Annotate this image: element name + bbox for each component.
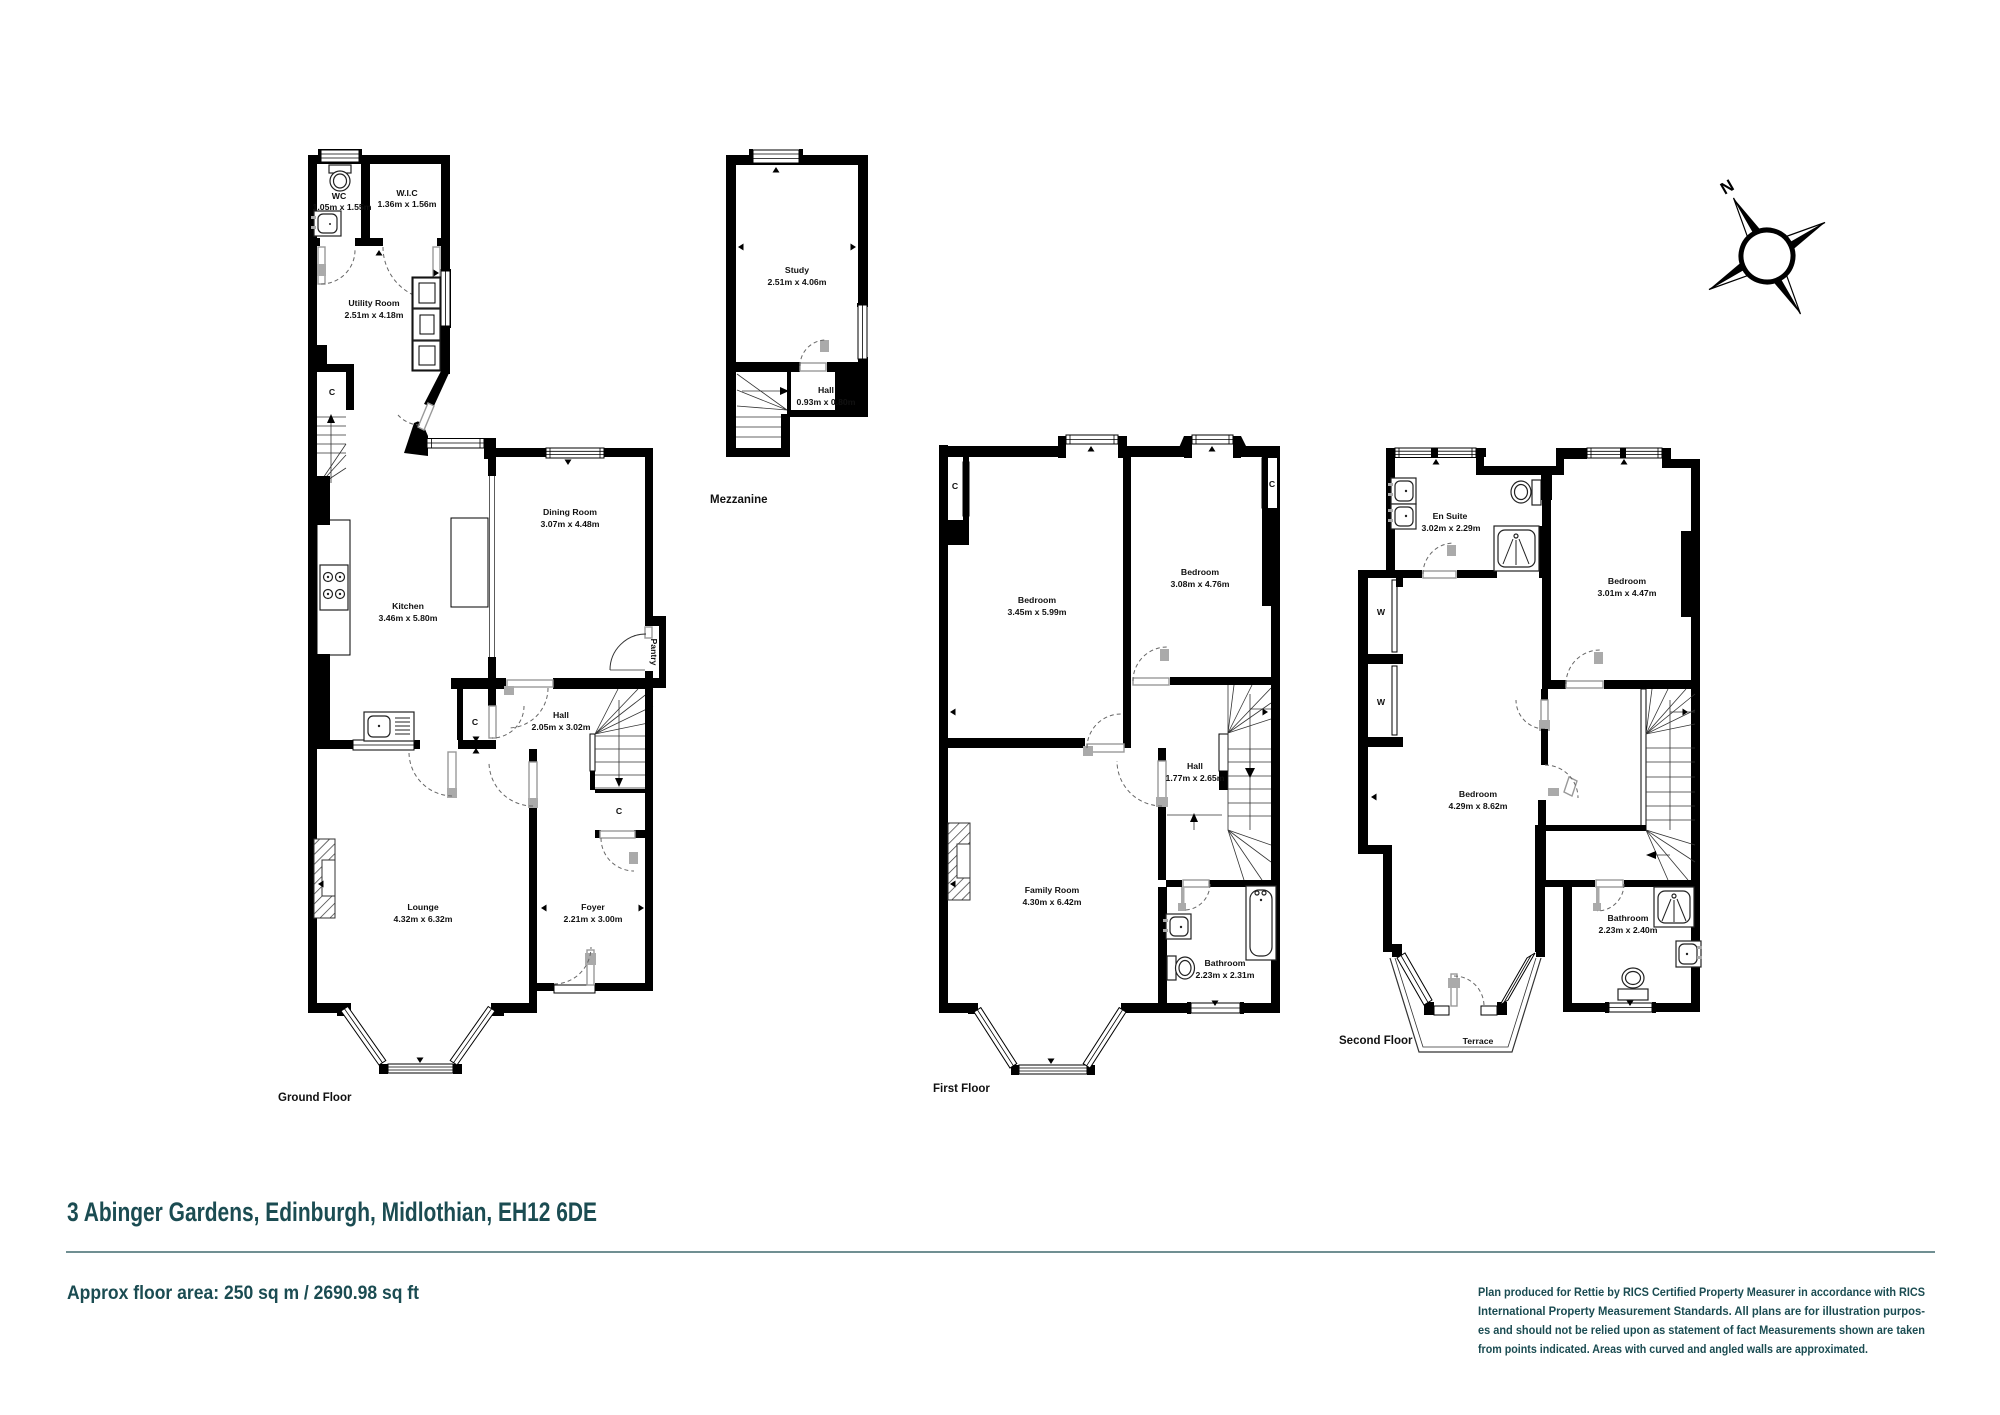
svg-text:4.29m x 8.62m: 4.29m x 8.62m: [1449, 801, 1508, 811]
svg-text:Utility Room: Utility Room: [348, 298, 399, 308]
svg-text:Bathroom: Bathroom: [1204, 958, 1245, 968]
svg-text:es and should not be relied up: es and should not be relied upon as stat…: [1478, 1323, 1925, 1337]
svg-text:En Suite: En Suite: [1433, 511, 1468, 521]
svg-text:3.01m x 4.47m: 3.01m x 4.47m: [1598, 588, 1657, 598]
svg-text:Bedroom: Bedroom: [1018, 595, 1056, 605]
svg-text:W.I.C: W.I.C: [396, 188, 418, 198]
svg-text:3.02m x 2.29m: 3.02m x 2.29m: [1422, 523, 1481, 533]
svg-text:C: C: [1269, 479, 1276, 489]
svg-text:from points indicated. Areas w: from points indicated. Areas with curved…: [1478, 1342, 1868, 1356]
svg-text:1.36m x 1.56m: 1.36m x 1.56m: [378, 199, 437, 209]
svg-text:C: C: [952, 481, 959, 491]
svg-text:1.05m x 1.55m: 1.05m x 1.55m: [313, 202, 372, 212]
svg-text:Lounge: Lounge: [407, 902, 439, 912]
svg-text:Foyer: Foyer: [581, 902, 605, 912]
svg-text:International Property Measur: International Property Measurement Stand…: [1478, 1304, 1925, 1318]
svg-text:First Floor: First Floor: [933, 1083, 990, 1095]
svg-text:3.45m x 5.99m: 3.45m x 5.99m: [1008, 607, 1067, 617]
svg-text:Bathroom: Bathroom: [1607, 913, 1648, 923]
svg-text:3 Abinger Gardens, Edinburgh,: 3 Abinger Gardens, Edinburgh, Midlothian…: [67, 1197, 597, 1227]
svg-text:C: C: [472, 717, 479, 727]
svg-text:2.51m x 4.18m: 2.51m x 4.18m: [345, 310, 404, 320]
svg-text:W: W: [1377, 697, 1386, 707]
svg-text:Bedroom: Bedroom: [1459, 789, 1497, 799]
svg-text:2.05m x 3.02m: 2.05m x 3.02m: [532, 722, 591, 732]
svg-text:Approx floor area: 250 sq m /: Approx floor area: 250 sq m / 2690.98 sq…: [67, 1282, 419, 1304]
svg-text:C: C: [329, 387, 336, 397]
svg-text:Hall: Hall: [818, 385, 834, 395]
svg-text:3.08m x 4.76m: 3.08m x 4.76m: [1171, 579, 1230, 589]
svg-text:Bedroom: Bedroom: [1608, 576, 1646, 586]
svg-text:3.07m x 4.48m: 3.07m x 4.48m: [541, 519, 600, 529]
svg-text:Hall: Hall: [553, 710, 569, 720]
svg-text:Mezzanine: Mezzanine: [710, 494, 768, 506]
svg-text:Study: Study: [785, 265, 809, 275]
svg-text:3.46m x 5.80m: 3.46m x 5.80m: [379, 613, 438, 623]
svg-text:Kitchen: Kitchen: [392, 601, 424, 611]
svg-text:0.93m x 0.80m: 0.93m x 0.80m: [797, 397, 856, 407]
svg-text:C: C: [616, 806, 623, 816]
svg-text:2.51m x 4.06m: 2.51m x 4.06m: [768, 277, 827, 287]
svg-text:4.30m x 6.42m: 4.30m x 6.42m: [1023, 897, 1082, 907]
svg-text:2.23m x 2.40m: 2.23m x 2.40m: [1599, 925, 1658, 935]
svg-text:Family Room: Family Room: [1025, 885, 1080, 895]
svg-text:Hall: Hall: [1187, 761, 1203, 771]
svg-text:Bedroom: Bedroom: [1181, 567, 1219, 577]
svg-text:4.32m x 6.32m: 4.32m x 6.32m: [394, 914, 453, 924]
svg-text:W: W: [1377, 607, 1386, 617]
svg-text:Pantry: Pantry: [649, 638, 659, 665]
svg-text:1.77m x 2.65m: 1.77m x 2.65m: [1166, 773, 1225, 783]
svg-text:Terrace: Terrace: [1463, 1036, 1494, 1046]
svg-text:WC: WC: [332, 191, 347, 201]
svg-text:Dining Room: Dining Room: [543, 507, 597, 517]
svg-text:Second Floor: Second Floor: [1339, 1035, 1413, 1047]
svg-text:Ground Floor: Ground Floor: [278, 1092, 352, 1104]
svg-text:Plan produced for Rettie by RI: Plan produced for Rettie by RICS Certifi…: [1478, 1285, 1925, 1299]
svg-text:2.23m x 2.31m: 2.23m x 2.31m: [1196, 970, 1255, 980]
svg-text:2.21m x 3.00m: 2.21m x 3.00m: [564, 914, 623, 924]
